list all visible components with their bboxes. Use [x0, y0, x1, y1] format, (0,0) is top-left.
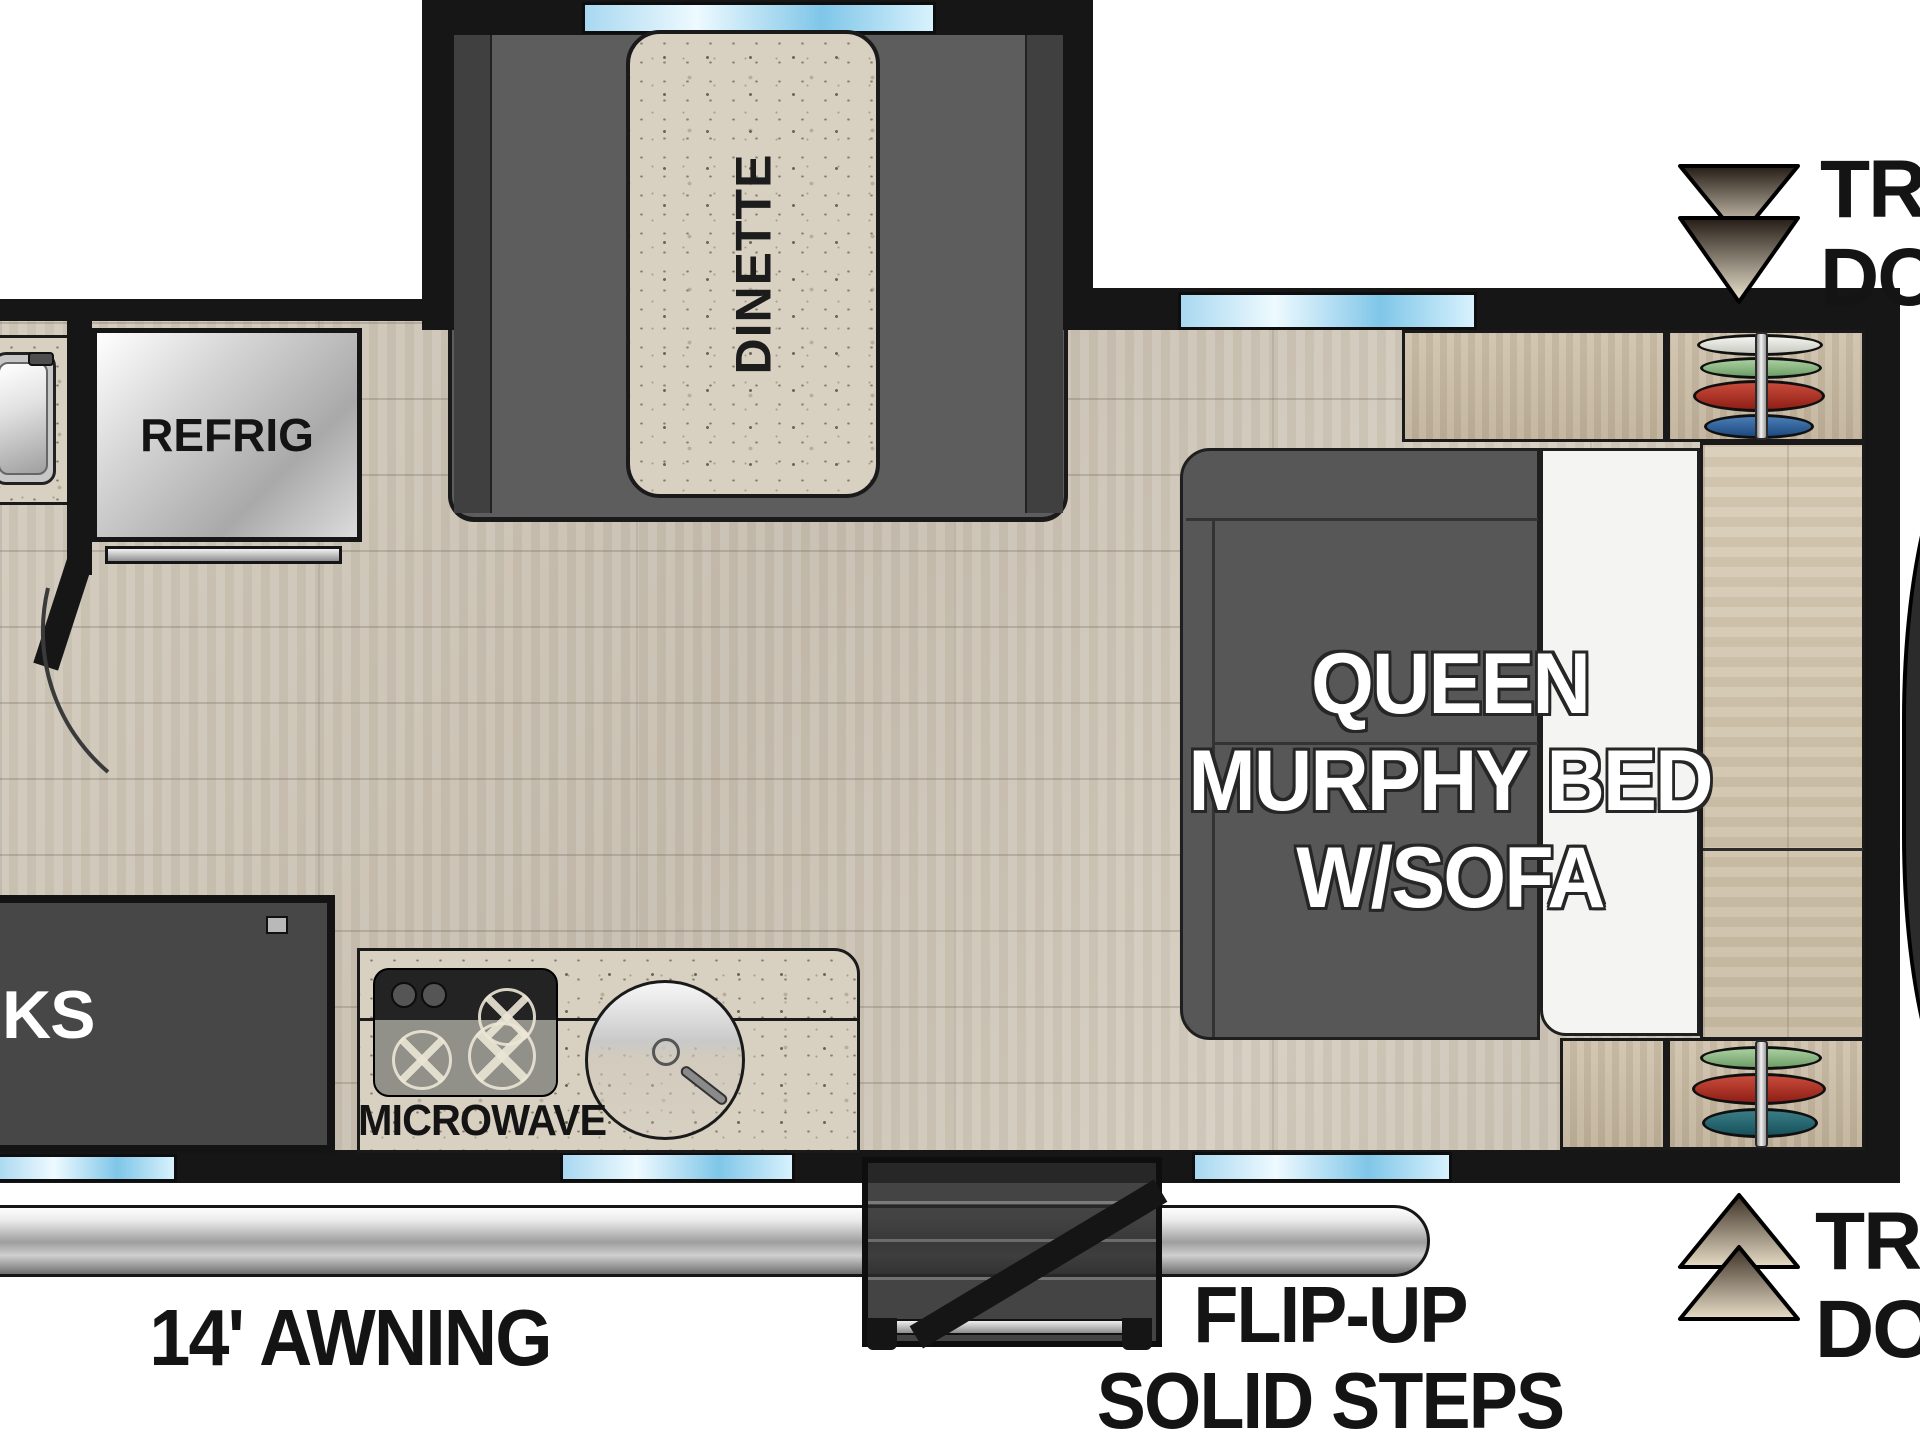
slideout-left-wall	[422, 0, 454, 330]
steps-label-line2: SOLID STEPS	[1026, 1358, 1633, 1440]
wardrobe-top-divider	[1663, 330, 1670, 442]
bunks-handle-icon	[266, 916, 288, 934]
top-wall-left	[0, 299, 422, 321]
awning-bar	[0, 1205, 1430, 1277]
murphy-bed-label: QUEEN MURPHY BED W/SOFA	[1121, 636, 1779, 927]
cooktop-knob1-icon	[391, 982, 417, 1008]
travel-door-label-top-line1: TR	[1820, 146, 1920, 234]
refrig-label: REFRIG	[140, 408, 314, 462]
step-slat2	[868, 1239, 1156, 1242]
steps-label-line1: FLIP-UP	[1026, 1272, 1633, 1358]
clothes-rod-bottom-icon	[1755, 1040, 1768, 1148]
bath-wall-stub	[67, 318, 92, 575]
dinette-bench-right	[1025, 35, 1063, 513]
bottom-window-right	[1192, 1152, 1452, 1182]
murphy-bed-label-line1: QUEEN	[1121, 636, 1779, 733]
top-window	[1178, 292, 1477, 330]
dinette-label: DINETTE	[724, 154, 782, 375]
bottom-window-center	[560, 1152, 795, 1182]
slideout-right-wall	[1063, 0, 1093, 330]
awning-label: 14' AWNING	[111, 1292, 589, 1384]
travel-door-marker-top-icon	[1672, 162, 1812, 307]
wardrobe-bottom-divider	[1663, 1038, 1670, 1150]
travel-door-label-bottom: TR DO	[1815, 1198, 1920, 1374]
travel-door-label-bottom-line2: DO	[1815, 1286, 1920, 1374]
sofa-back-seam	[1186, 518, 1538, 521]
burner2-icon	[392, 1030, 452, 1090]
floorplan: DINETTE REFRIG QUEEN MURPHY BED W/SOFA	[0, 0, 1920, 1440]
microwave-label: MICROWAVE	[358, 1096, 659, 1146]
refrigerator: REFRIG	[92, 328, 362, 542]
cooktop-knob2-icon	[421, 982, 447, 1008]
dinette-bench-left	[454, 35, 492, 513]
travel-door-label-top-line2: DO	[1820, 234, 1920, 322]
bunks-label: KS	[2, 976, 94, 1054]
refrigerator-door	[105, 546, 342, 564]
door-swing-arc-icon	[30, 580, 120, 780]
travel-door-label-bottom-line1: TR	[1815, 1198, 1920, 1286]
travel-door-marker-bottom-icon	[1672, 1188, 1812, 1323]
sink-drain-icon	[652, 1038, 680, 1066]
front-cap: ESCAPE	[1902, 420, 1920, 1135]
bottom-window-left	[0, 1154, 177, 1182]
dinette-table: DINETTE	[626, 30, 880, 498]
left-sink-basin	[0, 362, 48, 475]
faucet-icon	[28, 352, 54, 366]
murphy-bed-label-line3: W/SOFA	[1121, 830, 1779, 927]
murphy-bed-label-line2: MURPHY BED	[1121, 733, 1779, 830]
burner3-icon	[468, 1022, 536, 1090]
steps-label: FLIP-UP SOLID STEPS	[1026, 1272, 1633, 1440]
right-wall	[1865, 288, 1900, 1183]
travel-door-label-top: TR DO	[1820, 146, 1920, 322]
steps-foot-left	[867, 1318, 897, 1350]
clothes-rod-top-icon	[1755, 332, 1768, 440]
